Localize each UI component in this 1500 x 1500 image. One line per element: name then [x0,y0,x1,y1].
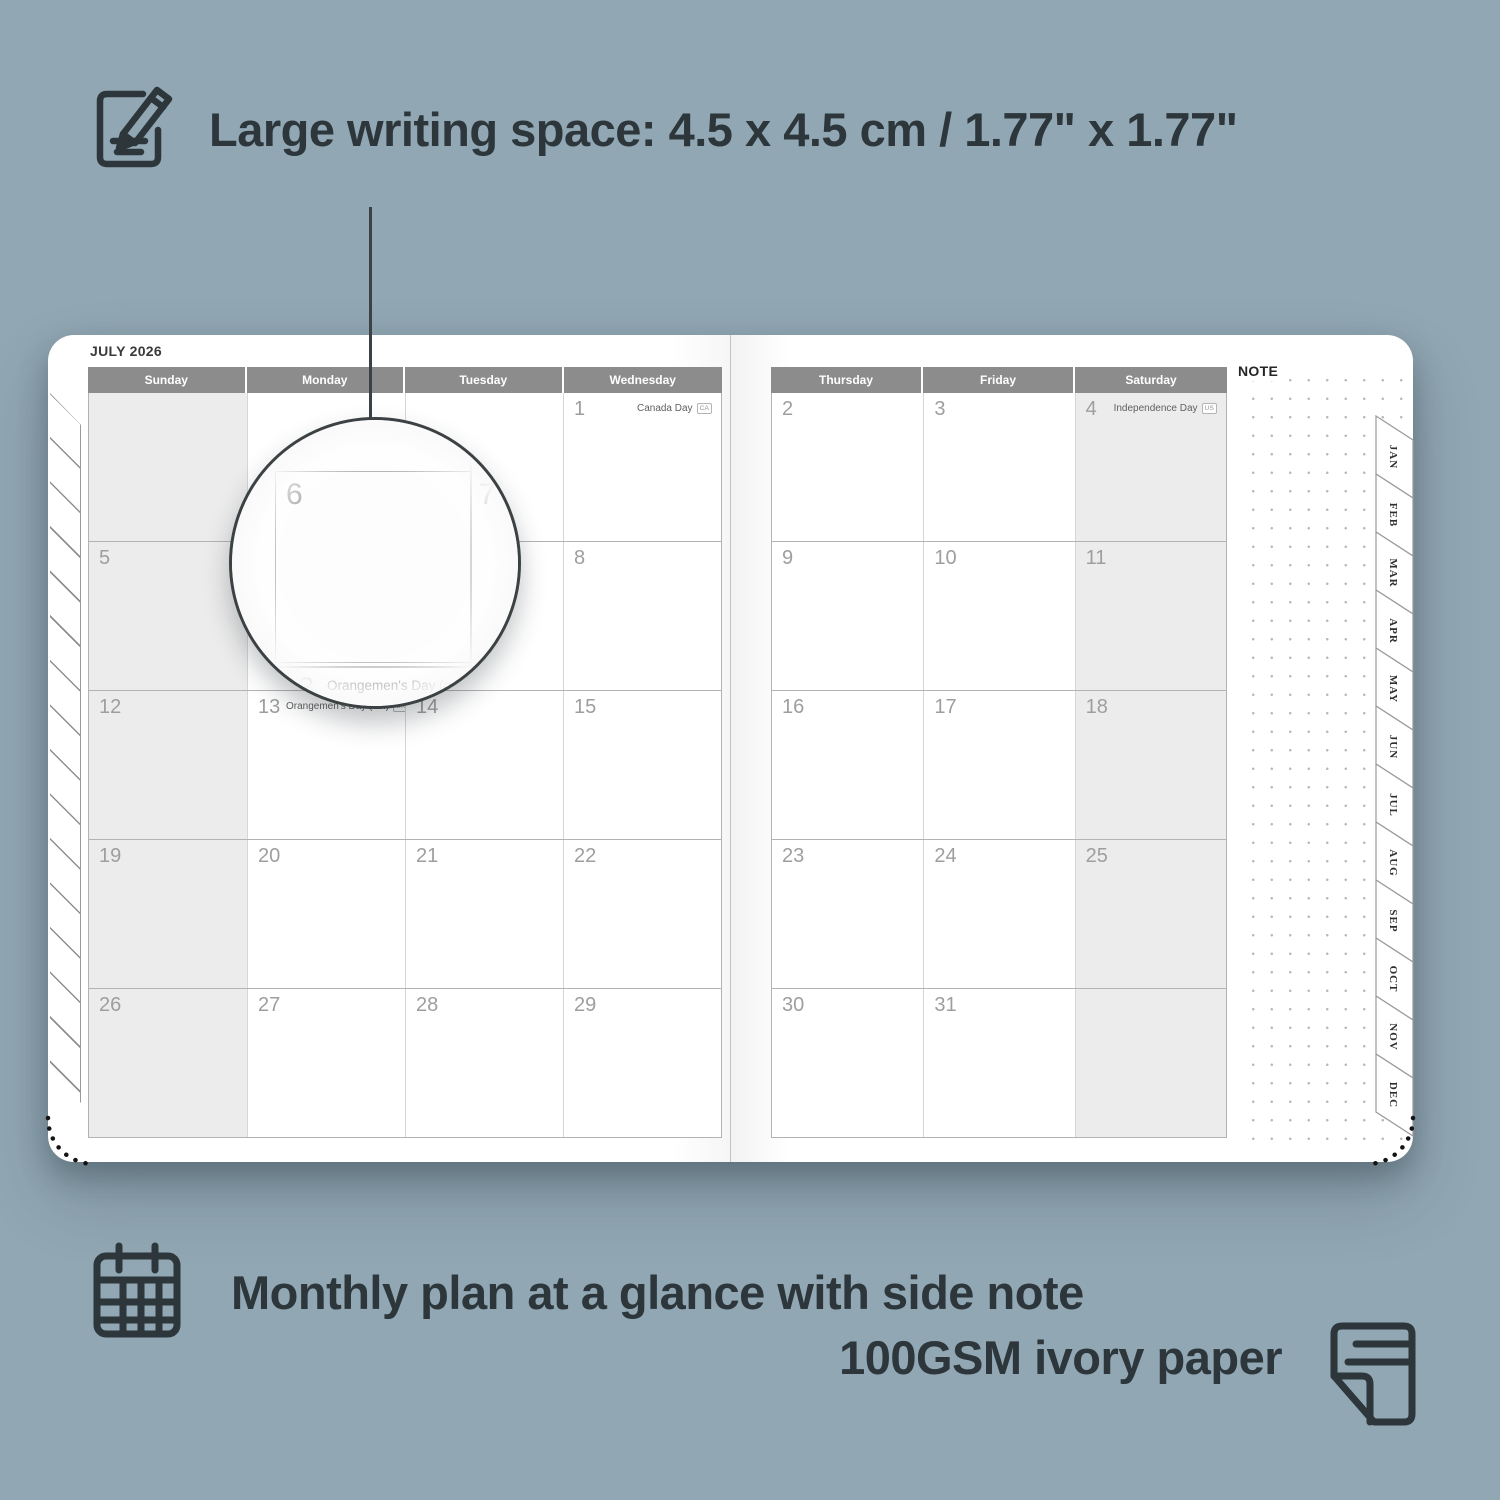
page-edge-hatching [50,393,81,1105]
holiday-entry: Canada DayCA [637,403,712,414]
day-number: 19 [99,845,121,868]
planner-notebook: JULY 2026 SundayMondayTuesdayWednesday 1… [48,335,1413,1162]
day-number: 16 [782,696,804,719]
day-number: 25 [1086,845,1108,868]
calendar-rows: 234Independence DayUS9101116171823242530… [771,393,1227,1138]
day-cell: 12 [89,691,247,839]
day-cell: 4Independence DayUS [1075,393,1226,541]
day-number: 24 [934,845,956,868]
paper-sheet-icon [1322,1318,1422,1436]
day-number: 23 [782,845,804,868]
day-number: 21 [416,845,438,868]
feature-monthly-plan-label: Monthly plan at a glance with side note [231,1265,1084,1320]
day-cell [89,393,247,541]
day-cell: 1Canada DayCA [563,393,721,541]
calendar-week-row: 19202122 [89,839,721,988]
day-number: 2 [782,398,793,421]
calendar-week-row: 91011 [772,541,1226,690]
day-number: 29 [574,994,596,1017]
day-number: 11 [1086,547,1107,570]
day-cell: 23 [772,840,923,988]
day-number: 4 [1086,398,1097,421]
feature-monthly-plan: Monthly plan at a glance with side note [85,1240,1084,1344]
weekday-header: Monday [247,367,406,393]
callout-connector-line [369,207,372,425]
holiday-name: Independence Day [1114,403,1198,414]
day-cell: 29 [563,989,721,1137]
day-number: 12 [99,696,121,719]
magnified-holiday: Orangemen's Day (n.i.) UK [327,678,490,693]
day-number: 15 [574,696,596,719]
day-number: 10 [934,547,956,570]
country-badge: CA [697,403,712,414]
day-number: 8 [574,547,585,570]
day-cell: 14 [405,691,563,839]
month-tab-label: APR [1387,618,1399,644]
day-cell: 15 [563,691,721,839]
day-cell [1075,989,1226,1137]
month-tab-label: MAY [1387,675,1399,703]
day-cell: 24 [923,840,1074,988]
note-label: NOTE [1238,363,1282,381]
weekday-header: Wednesday [564,367,723,393]
weekday-header: Saturday [1075,367,1227,393]
month-tab-label: MAR [1387,558,1399,587]
holiday-name: Canada Day [637,403,693,414]
day-cell: 2 [772,393,923,541]
month-tab-label: NOV [1387,1023,1399,1050]
month-tab-label: FEB [1387,503,1399,527]
magnifier-lens: 6 7 13 Orangemen's Day (n.i.) UK [229,417,521,709]
calendar-week-row: 3031 [772,988,1226,1137]
magnified-holiday-text: Orangemen's Day (n.i.) [327,678,466,693]
spine-fold-line [730,335,731,1162]
day-number: 30 [782,994,804,1017]
country-badge: US [1202,403,1217,414]
calendar-week-row: 161718 [772,690,1226,839]
weekday-header-row: ThursdayFridaySaturday [771,367,1227,393]
day-cell: 8 [563,542,721,690]
country-badge: UK [471,679,490,693]
magnified-column-line [470,420,472,706]
day-cell: 22 [563,840,721,988]
day-cell: 5 [89,542,247,690]
month-tab-label: AUG [1387,849,1399,876]
day-cell: 10 [923,542,1074,690]
day-cell: 21 [405,840,563,988]
calendar-grid-icon [85,1240,189,1344]
feature-paper-label: 100GSM ivory paper [839,1330,1282,1385]
day-cell: 11 [1075,542,1226,690]
day-number: 28 [416,994,438,1017]
day-cell: 13Orangemen's Day (n.i.)UK [247,691,405,839]
feature-writing-space-label: Large writing space: 4.5 x 4.5 cm / 1.77… [209,102,1237,157]
day-cell: 20 [247,840,405,988]
calendar-week-row: 232425 [772,839,1226,988]
day-cell: 25 [1075,840,1226,988]
month-tab-label: SEP [1387,909,1399,932]
magnified-day-6: 6 [286,478,303,512]
month-tabs: JANFEBMARAPRMAYJUNJULAUGSEPOCTNOVDEC [1375,415,1415,1141]
day-cell: 31 [923,989,1074,1137]
weekday-header: Sunday [88,367,247,393]
weekday-header: Friday [923,367,1075,393]
day-number: 22 [574,845,596,868]
month-tab-label: OCT [1387,966,1399,993]
day-cell: 17 [923,691,1074,839]
feature-writing-space: Large writing space: 4.5 x 4.5 cm / 1.77… [85,78,1237,180]
calendar-week-row: 1213Orangemen's Day (n.i.)UK1415 [89,690,721,839]
day-cell: 28 [405,989,563,1137]
day-cell: 18 [1075,691,1226,839]
day-number: 18 [1086,696,1108,719]
day-number: 17 [934,696,956,719]
writing-space-box [275,471,471,663]
weekday-header: Tuesday [405,367,564,393]
weekday-header-row: SundayMondayTuesdayWednesday [88,367,722,393]
calendar-week-row: 234Independence DayUS [772,393,1226,541]
stitch-corner-right [1353,1104,1417,1168]
weekday-header: Thursday [771,367,923,393]
paper-icon-wrap [1322,1318,1422,1441]
magnified-day-13: 13 [284,672,314,703]
day-cell: 9 [772,542,923,690]
magnified-day-7: 7 [479,478,496,512]
day-cell: 16 [772,691,923,839]
feature-paper: 100GSM ivory paper [839,1330,1282,1385]
day-number: 5 [99,547,110,570]
month-tab-label: JUL [1387,793,1399,817]
notepad-pencil-icon [85,78,187,180]
day-number: 3 [934,398,945,421]
day-cell: 19 [89,840,247,988]
product-image: Large writing space: 4.5 x 4.5 cm / 1.77… [0,0,1500,1500]
calendar-grid-right: ThursdayFridaySaturday 234Independence D… [771,367,1227,1138]
day-cell: 30 [772,989,923,1137]
calendar-week-row: 26272829 [89,988,721,1137]
day-number: 9 [782,547,793,570]
magnified-row-line [232,666,518,668]
holiday-entry: Independence DayUS [1114,403,1217,414]
day-number: 1 [574,398,585,421]
month-title: JULY 2026 [90,343,162,359]
month-tab-label: JUN [1387,735,1399,759]
day-number: 26 [99,994,121,1017]
stitch-corner-left [44,1104,108,1168]
day-number: 31 [934,994,956,1017]
day-cell: 26 [89,989,247,1137]
day-cell: 3 [923,393,1074,541]
day-number: 27 [258,994,280,1017]
month-tab-label: JAN [1387,445,1399,469]
day-number: 13 [258,696,280,719]
day-number: 20 [258,845,280,868]
day-cell: 27 [247,989,405,1137]
